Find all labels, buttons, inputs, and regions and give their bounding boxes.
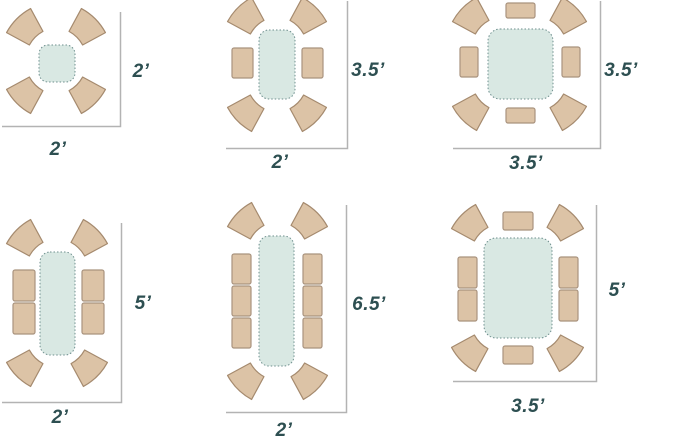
chair-rect [303,318,322,348]
chair-curved [5,7,48,50]
chair-rect [458,257,477,288]
width-dimension-label: 2’ [271,152,289,173]
chair-rect [559,290,578,321]
diagram-table-2x3.5: 3.5’ 2’ [226,0,385,173]
chair-curved [64,7,107,50]
table-top [39,45,75,82]
chair-rect [503,212,533,230]
chair-rect [82,303,104,334]
chair-curved [286,201,329,244]
chair-curved [451,0,494,39]
chair-rect [506,3,535,18]
chair-curved [545,0,588,39]
chair-rect [303,254,322,284]
seating-diagram-sheet: 2’ 2’ 3.5’ 2’ 3.5’ [0,0,679,442]
chair-rect [460,47,478,77]
chair-curved [66,218,109,261]
depth-dimension-label: 3.5’ [604,60,638,81]
chair-curved [450,330,493,373]
chair-curved [451,89,494,132]
chair-rect [303,286,322,316]
depth-dimension-label: 5’ [135,293,152,314]
chair-rect [506,108,535,123]
diagram-table-2x5: 5’ 2’ [2,218,152,428]
depth-dimension-label: 6.5’ [352,294,386,315]
depth-dimension-label: 3.5’ [351,60,385,81]
table-top [259,30,295,99]
chair-curved [542,203,585,246]
diagram-table-2x6.5: 6.5’ 2’ [226,201,386,441]
chair-rect [232,318,251,348]
width-dimension-label: 2’ [51,407,69,428]
table-top [488,29,553,99]
chair-rect [302,48,323,78]
chair-rect [82,270,104,301]
chair-rect [458,290,477,321]
chair-curved [542,330,585,373]
diagram-canvas: 2’ 2’ 3.5’ 2’ 3.5’ [0,0,679,442]
diagram-table-3.5x3.5: 3.5’ 3.5’ [451,0,638,174]
width-dimension-label: 2’ [49,139,67,160]
chair-rect [232,48,253,78]
chair-rect [562,47,580,77]
table-top [259,236,294,366]
chair-rect [503,346,533,364]
diagram-table-3.5x5: 5’ 3.5’ [450,203,626,417]
diagram-table-2x2: 2’ 2’ [2,7,150,160]
chair-rect [559,257,578,288]
width-dimension-label: 2’ [275,420,293,441]
chair-curved [5,218,48,261]
chair-curved [450,203,493,246]
table-top [484,238,552,338]
width-dimension-label: 3.5’ [509,153,543,174]
chair-curved [5,345,48,388]
chair-curved [545,89,588,132]
width-dimension-label: 3.5’ [511,396,545,417]
chair-curved [226,358,269,401]
depth-dimension-label: 5’ [609,280,626,301]
table-top [40,252,75,355]
depth-dimension-label: 2’ [132,61,150,82]
chair-rect [232,254,251,284]
chair-rect [232,286,251,316]
chair-rect [13,270,35,301]
chair-curved [286,358,329,401]
chair-rect [13,303,35,334]
